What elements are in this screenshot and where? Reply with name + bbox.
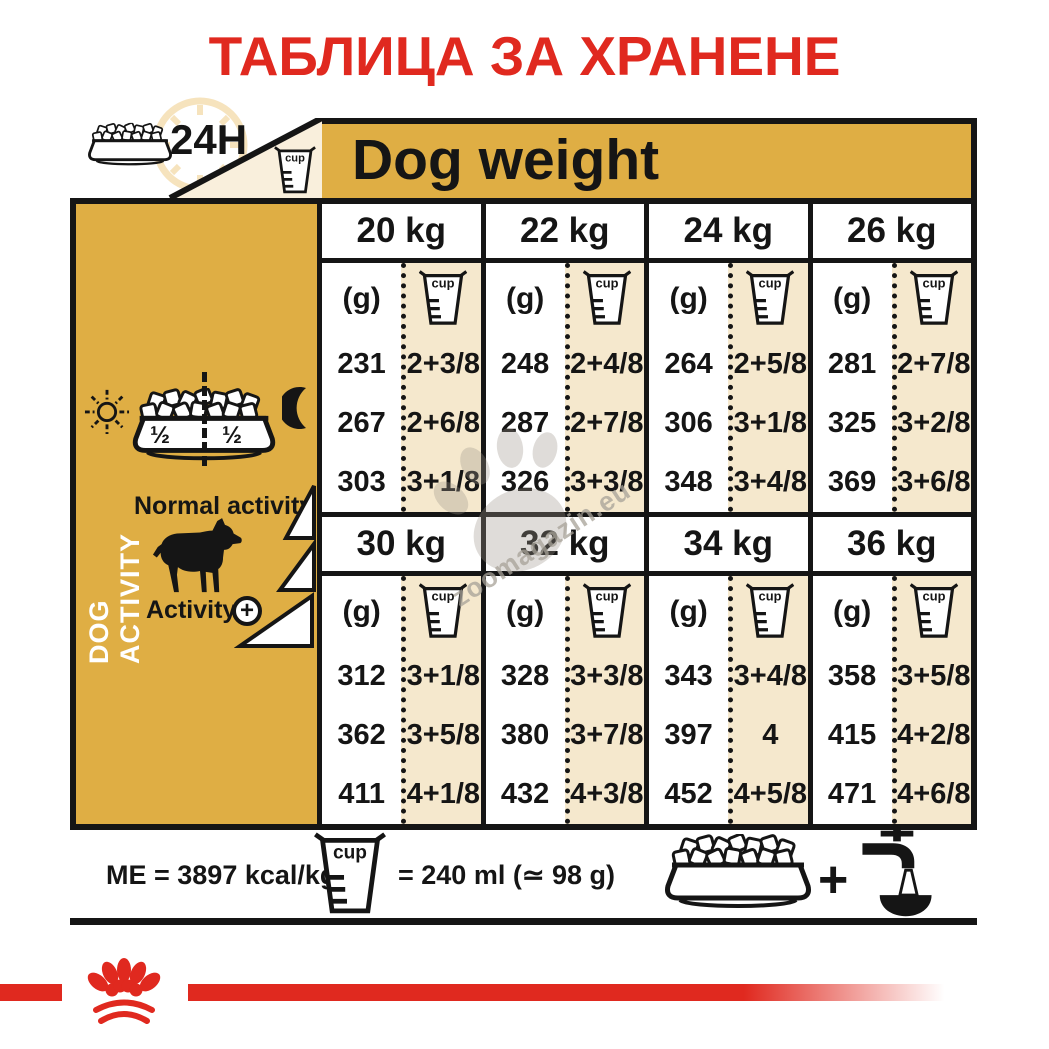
- cup-value: 3+4/8: [733, 453, 807, 512]
- columns-row: (g)3123624113+1/83+5/84+1/8(g)3283804323…: [322, 576, 971, 825]
- cup-icon: [272, 146, 318, 196]
- moon-icon: [282, 386, 314, 430]
- activity-level-triangles: [234, 482, 322, 650]
- cup-value: 4+2/8: [897, 706, 971, 765]
- grams-unit-label: (g): [649, 576, 728, 648]
- grams-subcolumn: (g)312362411: [322, 576, 401, 825]
- weight-grid: 20 kg22 kg24 kg26 kg(g)2312673032+3/82+6…: [322, 204, 971, 824]
- weight-header: 20 kg: [322, 204, 481, 258]
- grams-value: 303: [322, 453, 401, 512]
- grams-value: 358: [813, 648, 892, 707]
- grams-value: 267: [322, 394, 401, 453]
- cup-icon: [570, 263, 644, 335]
- columns-row: (g)2312673032+3/82+6/83+1/8(g)2482873262…: [322, 263, 971, 512]
- cups-subcolumn: 3+4/844+5/8: [728, 576, 807, 825]
- cups-subcolumn: 3+5/84+2/84+6/8: [892, 576, 971, 825]
- cup-value: 3+1/8: [733, 394, 807, 453]
- grams-value: 328: [486, 648, 565, 707]
- grams-value: 415: [813, 706, 892, 765]
- grams-value: 471: [813, 765, 892, 824]
- dog-activity-sidebar: ½ ½ DOG ACTIVITY Normal activity Activit…: [76, 204, 322, 824]
- grams-value: 369: [813, 453, 892, 512]
- cup-value: 2+3/8: [406, 335, 480, 394]
- grams-unit-label: (g): [813, 263, 892, 335]
- kibble-bowl-icon: [656, 834, 820, 918]
- grams-unit-label: (g): [813, 576, 892, 648]
- grams-value: 343: [649, 648, 728, 707]
- grams-value: 306: [649, 394, 728, 453]
- half-portion-right: ½: [222, 422, 242, 450]
- feeding-block: 20 kg22 kg24 kg26 kg(g)2312673032+3/82+6…: [322, 204, 971, 512]
- brand-bar-right: [188, 984, 960, 1001]
- grams-subcolumn: (g)358415471: [813, 576, 892, 825]
- grams-value: 312: [322, 648, 401, 707]
- cup-value: 3+4/8: [733, 648, 807, 707]
- cup-value: 3+6/8: [897, 453, 971, 512]
- dog-weight-header: Dog weight: [322, 118, 977, 198]
- feeding-block: 30 kg32 kg34 kg36 kg(g)3123624113+1/83+5…: [322, 512, 971, 825]
- weight-header-row: 20 kg22 kg24 kg26 kg: [322, 204, 971, 263]
- cups-subcolumn: 2+5/83+1/83+4/8: [728, 263, 807, 512]
- cup-icon: [897, 576, 971, 648]
- grams-unit-label: (g): [322, 576, 401, 648]
- cup-icon: [310, 832, 390, 918]
- cup-equals-label: = 240 ml (≃ 98 g): [398, 860, 615, 891]
- cup-value: 4+3/8: [570, 765, 644, 824]
- cups-subcolumn: 3+3/83+7/84+3/8: [565, 576, 644, 825]
- sun-icon: [84, 386, 130, 436]
- weight-header: 36 kg: [808, 517, 972, 571]
- cups-subcolumn: 3+1/83+5/84+1/8: [401, 576, 480, 825]
- cup-value: 4+6/8: [897, 765, 971, 824]
- weight-header: 34 kg: [644, 517, 808, 571]
- grams-value: 452: [649, 765, 728, 824]
- weight-column: (g)3584154713+5/84+2/84+6/8: [808, 576, 972, 825]
- cup-value: 3+5/8: [406, 706, 480, 765]
- cup-icon: [733, 576, 807, 648]
- cup-icon: [897, 263, 971, 335]
- grams-value: 362: [322, 706, 401, 765]
- royal-canin-crown-logo: [64, 948, 184, 1030]
- cup-icon: [570, 576, 644, 648]
- grams-value: 264: [649, 335, 728, 394]
- plus-sign: +: [818, 850, 848, 910]
- cup-value: 3+7/8: [570, 706, 644, 765]
- cup-value: 2+5/8: [733, 335, 807, 394]
- grams-value: 248: [486, 335, 565, 394]
- cup-value: 4: [733, 706, 807, 765]
- grams-value: 281: [813, 335, 892, 394]
- weight-column: (g)2813253692+7/83+2/83+6/8: [808, 263, 972, 512]
- bowl-divider-line: [202, 372, 207, 466]
- grams-value: 411: [322, 765, 401, 824]
- cup-value: 3+1/8: [406, 648, 480, 707]
- grams-value: 380: [486, 706, 565, 765]
- weight-header: 24 kg: [644, 204, 808, 258]
- grams-value: 325: [813, 394, 892, 453]
- cup-value: 3+5/8: [897, 648, 971, 707]
- weight-column: (g)3123624113+1/83+5/84+1/8: [322, 576, 481, 825]
- grams-subcolumn: (g)231267303: [322, 263, 401, 512]
- half-portion-left: ½: [150, 422, 170, 450]
- grams-subcolumn: (g)264306348: [649, 263, 728, 512]
- cup-value: 3+3/8: [570, 648, 644, 707]
- grams-unit-label: (g): [486, 263, 565, 335]
- grams-subcolumn: (g)281325369: [813, 263, 892, 512]
- weight-header-row: 30 kg32 kg34 kg36 kg: [322, 517, 971, 576]
- weight-header: 26 kg: [808, 204, 972, 258]
- grams-subcolumn: (g)343397452: [649, 576, 728, 825]
- weight-header: 22 kg: [481, 204, 645, 258]
- cup-value: 4+1/8: [406, 765, 480, 824]
- weight-column: (g)2643063482+5/83+1/83+4/8: [644, 263, 808, 512]
- grams-value: 348: [649, 453, 728, 512]
- weight-column: (g)3283804323+3/83+7/84+3/8: [481, 576, 645, 825]
- weight-column: (g)3433974523+4/844+5/8: [644, 576, 808, 825]
- cup-icon: [406, 263, 480, 335]
- brand-bar-left: [0, 984, 62, 1001]
- grams-unit-label: (g): [649, 263, 728, 335]
- grams-subcolumn: (g)328380432: [486, 576, 565, 825]
- activity-label: Activity: [146, 596, 236, 625]
- cup-value: 4+5/8: [733, 765, 807, 824]
- grams-value: 397: [649, 706, 728, 765]
- cup-icon: [733, 263, 807, 335]
- energy-label: ME = 3897 kcal/kg: [106, 860, 336, 891]
- cup-value: 3+2/8: [897, 394, 971, 453]
- grams-value: 432: [486, 765, 565, 824]
- footer-divider: [70, 918, 977, 925]
- cup-value: 2+4/8: [570, 335, 644, 394]
- page-title: ТАБЛИЦА ЗА ХРАНЕНЕ: [0, 24, 1049, 88]
- grams-unit-label: (g): [322, 263, 401, 335]
- cups-subcolumn: 2+7/83+2/83+6/8: [892, 263, 971, 512]
- feeding-table-page: cup: [0, 0, 1049, 1049]
- cup-value: 2+7/8: [897, 335, 971, 394]
- water-tap-icon: [854, 826, 940, 922]
- grams-value: 231: [322, 335, 401, 394]
